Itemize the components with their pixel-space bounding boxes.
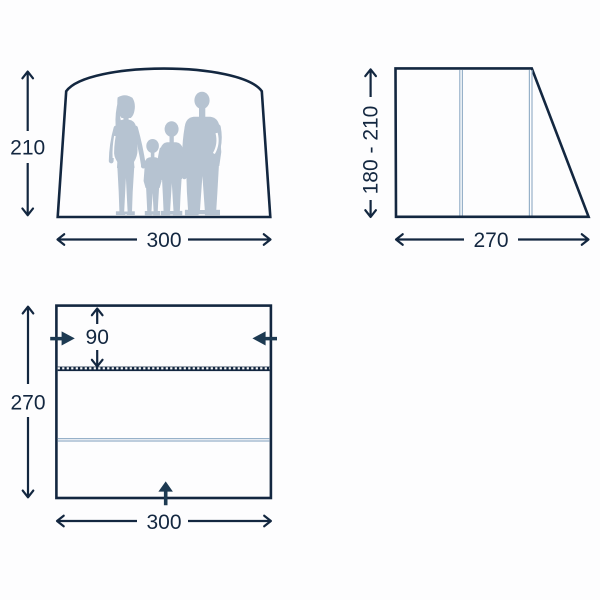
svg-text:270: 270 xyxy=(10,391,45,414)
svg-text:270: 270 xyxy=(473,229,508,252)
svg-text:210: 210 xyxy=(10,137,45,160)
svg-text:300: 300 xyxy=(146,229,181,252)
svg-text:90: 90 xyxy=(86,326,109,349)
svg-text:180 - 210: 180 - 210 xyxy=(360,106,383,195)
svg-text:300: 300 xyxy=(146,511,181,534)
